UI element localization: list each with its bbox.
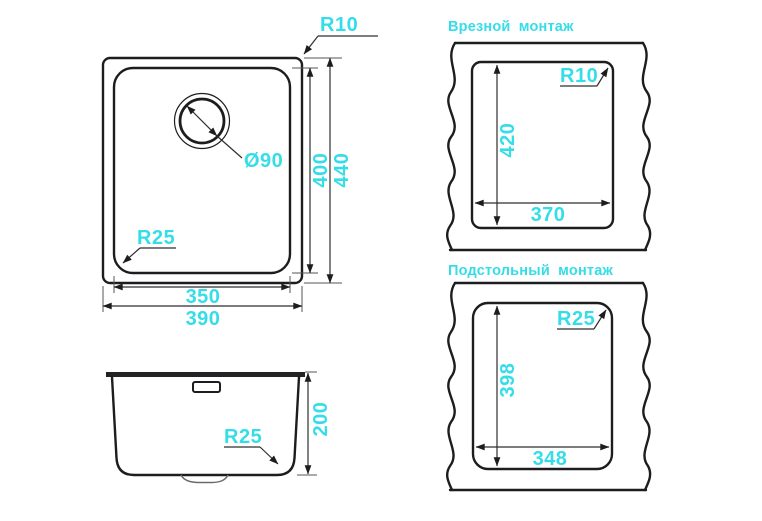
drain-diameter-arrow: [187, 106, 217, 136]
countertop-left-break: [447, 283, 455, 490]
countertop-left-break: [447, 43, 455, 250]
dim-398-label: 398: [497, 363, 519, 398]
side-view-r25-label: R25: [224, 426, 262, 448]
drain-diameter-label: Ø90: [244, 150, 283, 172]
undermount-r25-label: R25: [557, 308, 595, 330]
sink-side-view: 200 R25: [106, 372, 332, 483]
undermount-diagram: Подстольный монтаж 398 348 R25: [447, 263, 650, 490]
r25-arrow: [260, 447, 278, 464]
dim-390-label: 390: [186, 308, 221, 330]
undermount-title: Подстольный монтаж: [448, 263, 613, 279]
r25-arrow: [594, 310, 606, 329]
dim-200-label: 200: [310, 402, 332, 437]
r10-arrow: [597, 68, 608, 86]
sink-top-view: Ø90 R10 R25 400 440 350 390: [103, 14, 378, 330]
top-view-r25-label: R25: [137, 227, 175, 249]
drawing-svg: Ø90 R10 R25 400 440 350 390: [0, 0, 762, 521]
countertop-right-break: [643, 43, 650, 250]
dim-400-label: 400: [310, 153, 332, 188]
dim-370-label: 370: [531, 204, 566, 226]
dim-350-label: 350: [186, 286, 221, 308]
sink-dimensions-drawing: Ø90 R10 R25 400 440 350 390: [0, 0, 762, 521]
r10-arrow: [304, 36, 318, 54]
top-view-r10-label: R10: [320, 14, 358, 36]
countertop-right-break: [643, 283, 650, 490]
dim-440-label: 440: [331, 153, 353, 188]
inset-mount-title: Врезной монтаж: [448, 19, 574, 35]
dim-348-label: 348: [533, 448, 568, 470]
sink-rim-flange: [106, 372, 305, 377]
drain-leader-line: [217, 136, 242, 158]
r25-arrow: [123, 248, 140, 263]
inset-r10-label: R10: [560, 65, 598, 87]
inset-mount-diagram: Врезной монтаж 420 370 R10: [447, 19, 650, 250]
overflow-hole: [193, 382, 220, 392]
dim-420-label: 420: [497, 123, 519, 158]
